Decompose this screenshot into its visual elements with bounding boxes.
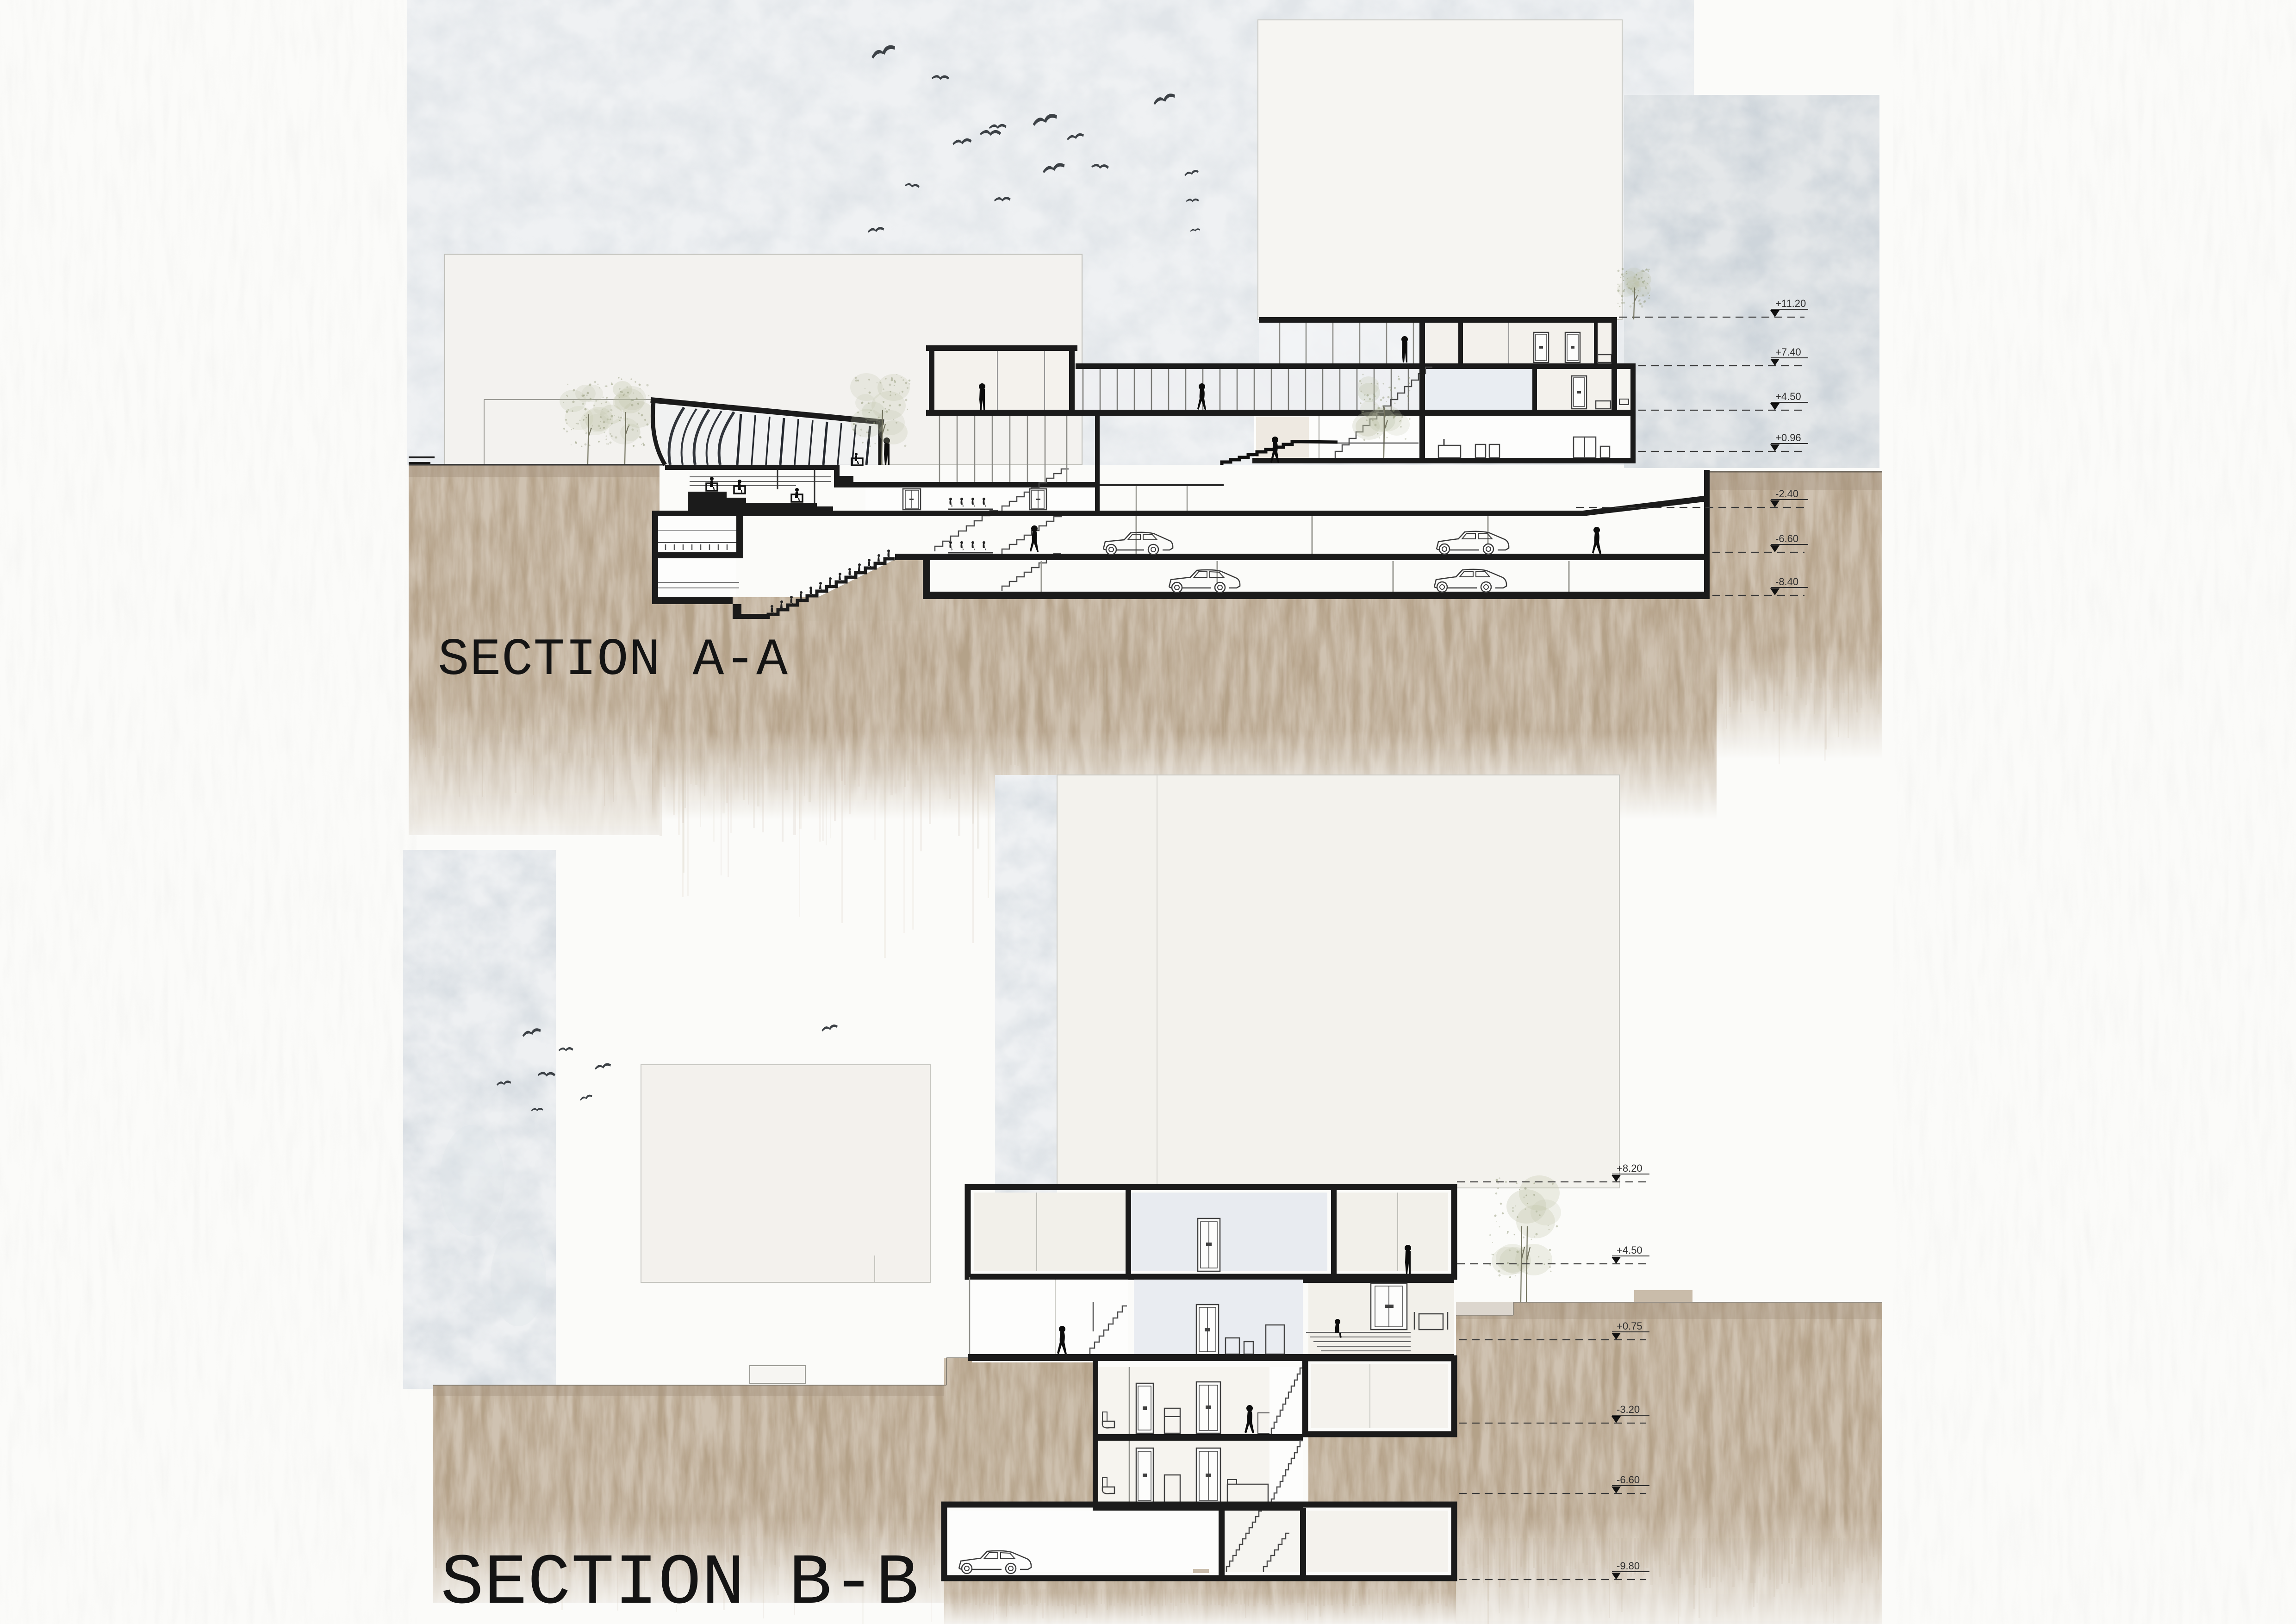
svg-text:-3.20: -3.20: [1617, 1404, 1640, 1415]
svg-text:-6.60: -6.60: [1617, 1474, 1640, 1486]
svg-text:-2.40: -2.40: [1775, 488, 1798, 500]
svg-text:+4.50: +4.50: [1775, 391, 1801, 402]
svg-text:-9.80: -9.80: [1617, 1560, 1640, 1572]
svg-text:+4.50: +4.50: [1617, 1244, 1643, 1256]
svg-text:+7.40: +7.40: [1775, 346, 1801, 358]
svg-text:+11.20: +11.20: [1775, 298, 1806, 309]
svg-text:+8.20: +8.20: [1617, 1162, 1643, 1174]
svg-text:+0.96: +0.96: [1775, 432, 1801, 443]
svg-text:SECTION B-B: SECTION B-B: [441, 1543, 919, 1624]
svg-text:SECTION A-A: SECTION A-A: [438, 631, 788, 690]
svg-text:-8.40: -8.40: [1775, 576, 1798, 587]
svg-text:+0.75: +0.75: [1617, 1320, 1643, 1332]
svg-text:-6.60: -6.60: [1775, 533, 1798, 544]
